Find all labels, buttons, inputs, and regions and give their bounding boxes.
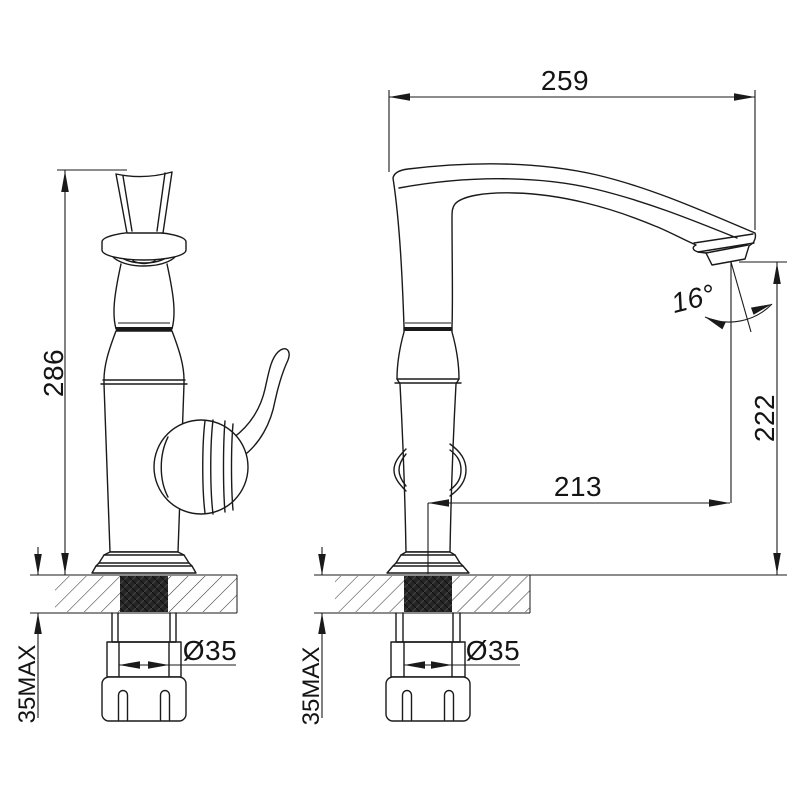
dim-286-arrow-bottom [61,553,69,574]
countertop-front-view [30,575,237,613]
max35-front-arrow-up [34,613,42,634]
side-view-faucet [387,164,755,573]
counter-hatch-right [168,576,237,612]
dimension-outlet-angle: 16° [668,262,773,332]
mounting-nut [102,677,186,721]
max35-front-label: 35MAX [14,645,41,724]
front-view-faucet [92,172,289,573]
dia35-side-label: Ø35 [466,635,520,666]
dia35-side-arrow-right [431,661,452,669]
dimension-hole-dia-front: Ø35 [119,635,237,669]
dim-286-arrow-top [61,171,69,192]
counter-hatch-left [335,576,404,612]
faucet-shank-section [120,576,168,612]
dimension-deck-max-front: 35MAX [14,547,42,723]
dia35-front-arrow-left [119,661,140,669]
dim-259-arrow-left [389,93,410,101]
neck-fill [114,264,174,329]
max35-side-arrow-down [318,554,326,575]
dia35-front-arrow-right [148,661,169,669]
dim-259-arrow-right [734,93,755,101]
dim-16deg-label: 16° [668,278,718,319]
faucet-dimension-drawing: 259 286 222 213 16° Ø35 [0,0,800,800]
mounting-nut [386,677,470,721]
dim-222-arrow-bottom [773,553,781,574]
under-counter-front-view [102,613,186,721]
thread-block [391,642,465,677]
under-counter-side-view [386,613,470,721]
handle-knob [154,420,248,514]
shank-collar [396,613,460,642]
dim-286-label: 286 [38,349,69,397]
dia35-side-arrow-left [404,661,425,669]
dim-222-label: 222 [749,394,780,442]
max35-front-arrow-down [34,554,42,575]
counter-hatch-left [55,576,120,612]
dim-213-label: 213 [554,471,602,502]
thread-block [107,642,181,677]
dim-259-label: 259 [541,65,589,96]
technical-drawing-page: 259 286 222 213 16° Ø35 [0,0,800,800]
counter-hatch-right [452,576,530,612]
dimension-hole-dia-side: Ø35 [404,635,520,669]
faucet-shank-section [404,576,452,612]
shank-collar [112,613,176,642]
dim-213-arrow-right [709,499,730,507]
dia35-front-label: Ø35 [183,635,237,666]
countertop-side-view [314,575,787,613]
max35-side-arrow-up [318,613,326,634]
spout-collar [102,232,186,260]
dim-222-arrow-top [773,263,781,284]
dimension-deck-max-side: 35MAX [298,547,326,725]
max35-side-label: 35MAX [298,647,325,726]
